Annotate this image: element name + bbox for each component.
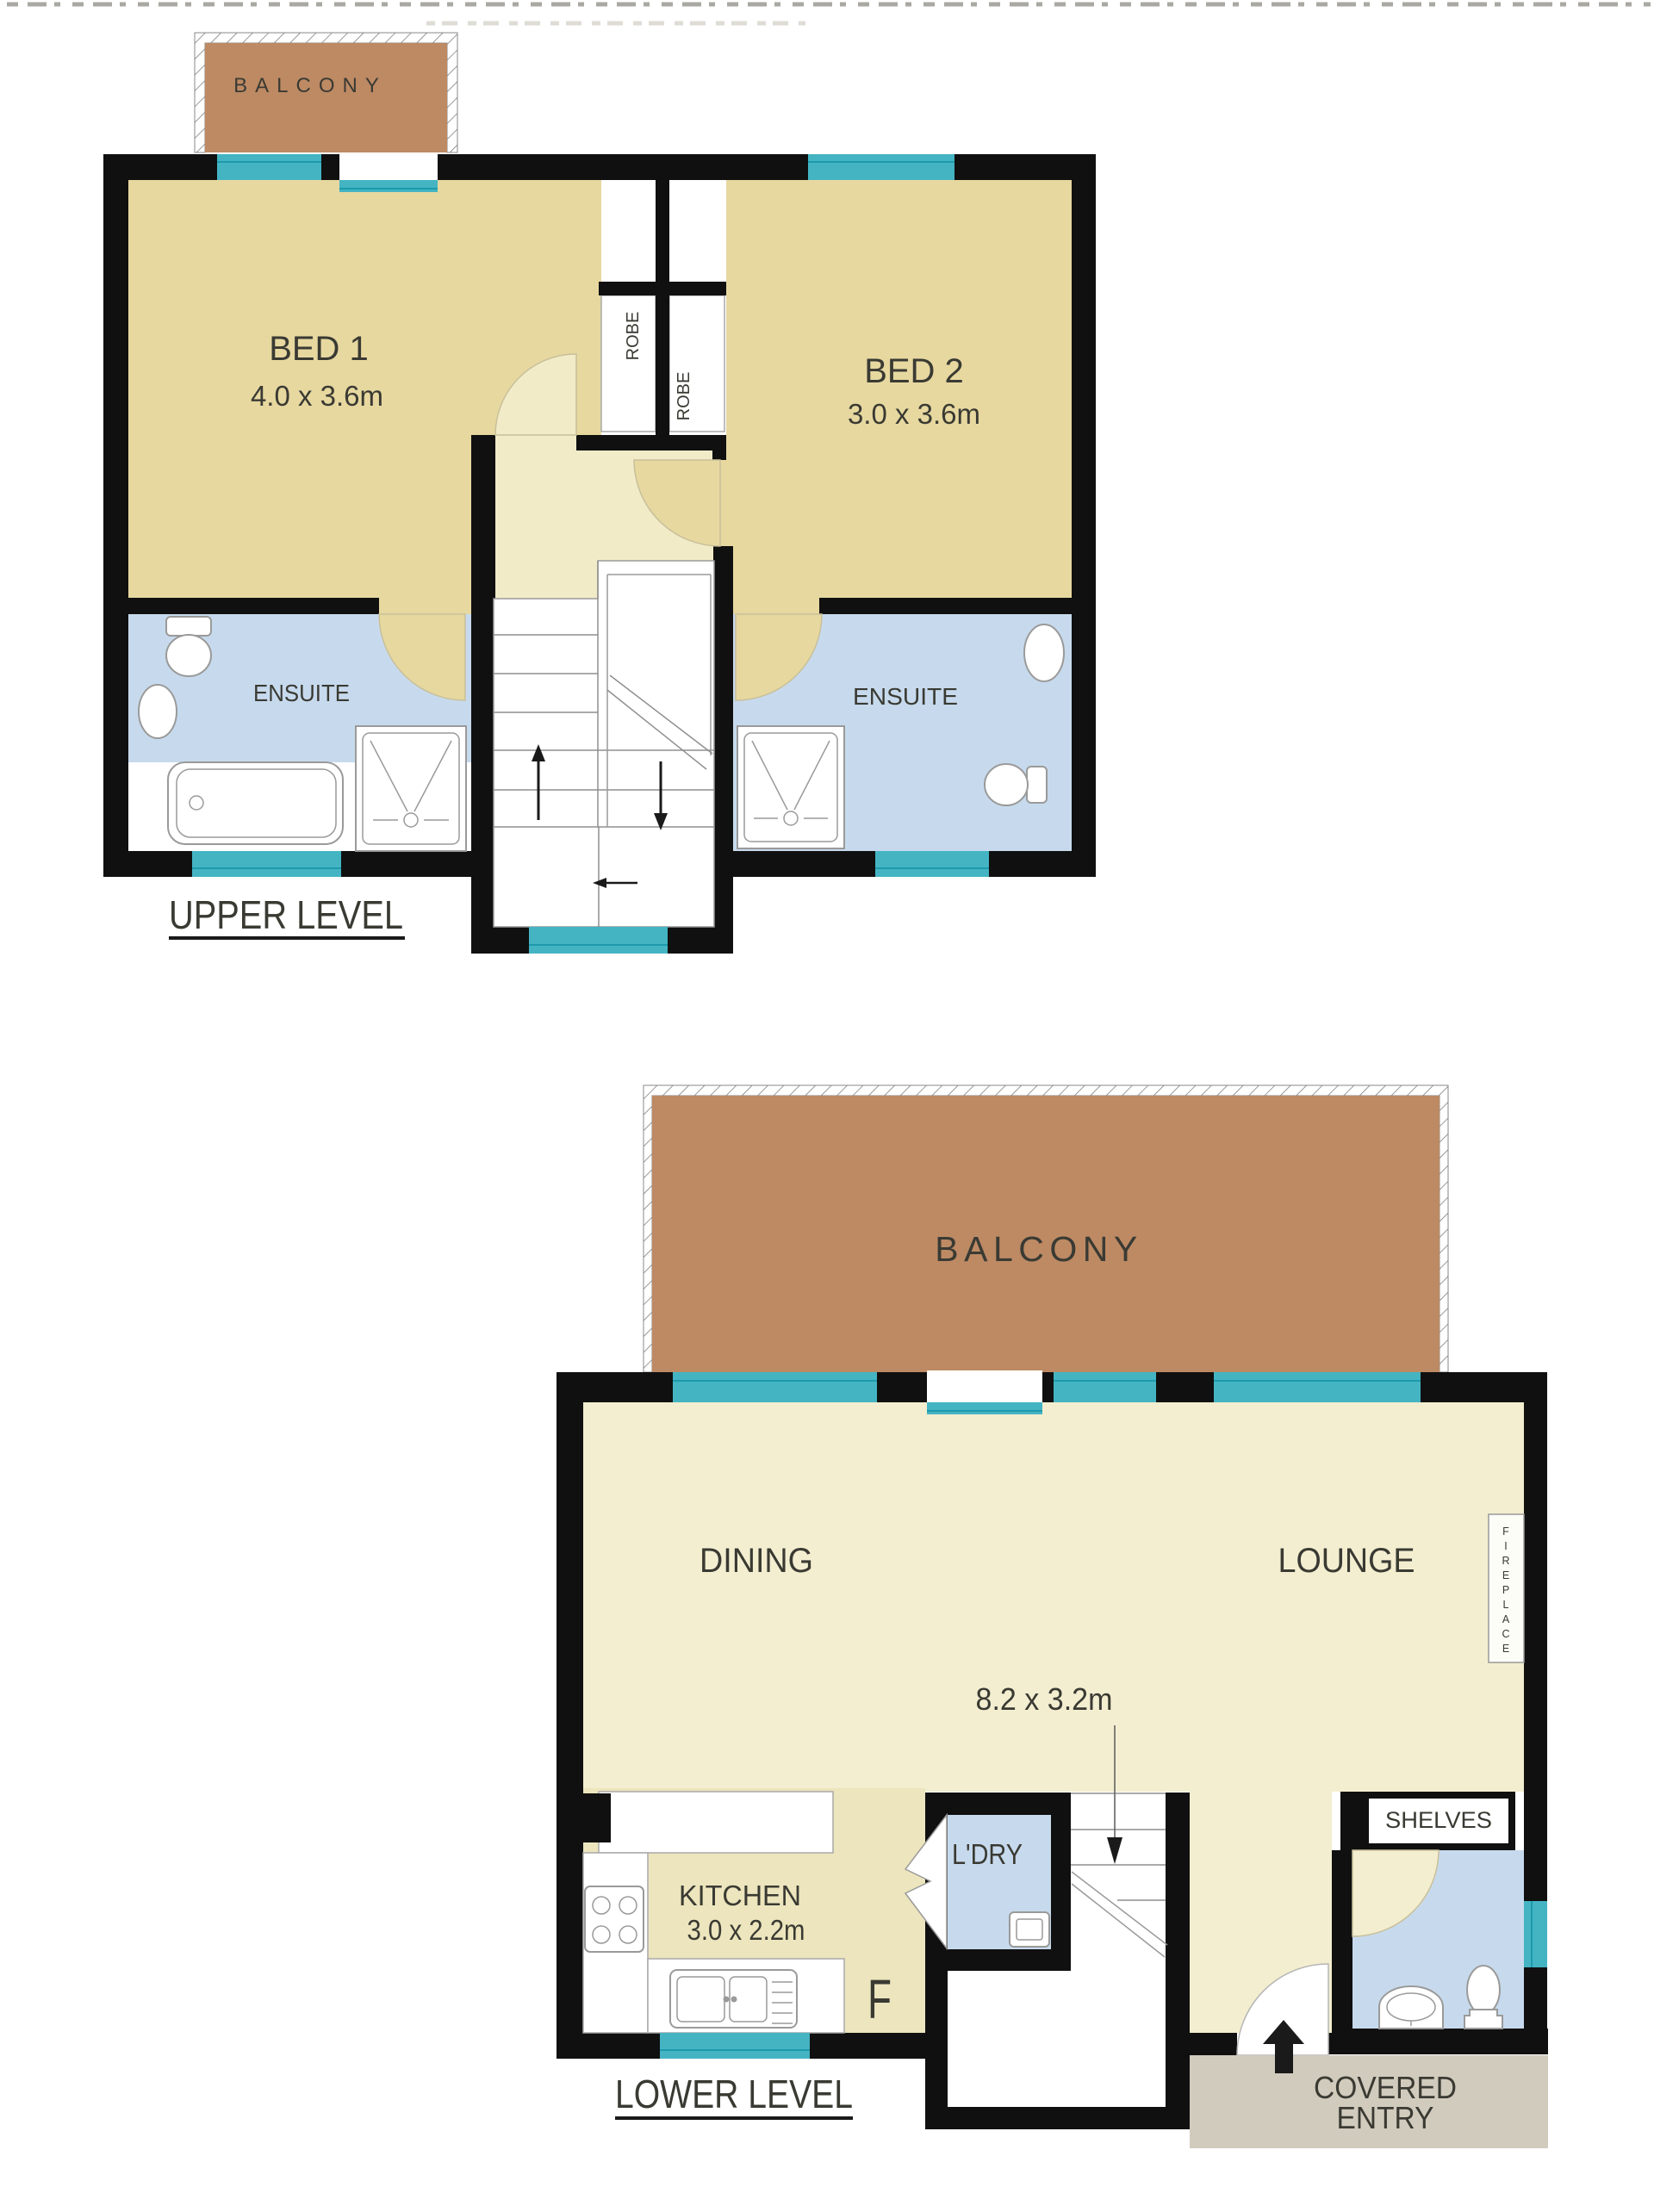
svg-text:DINING: DINING	[700, 1542, 813, 1580]
svg-text:UPPER LEVEL: UPPER LEVEL	[169, 892, 403, 937]
svg-text:ROBE: ROBE	[675, 372, 693, 421]
svg-text:P: P	[1502, 1584, 1509, 1596]
svg-text:4.0 x 3.6m: 4.0 x 3.6m	[251, 380, 383, 412]
svg-text:8.2 x 3.2m: 8.2 x 3.2m	[976, 1681, 1113, 1717]
svg-text:LOUNGE: LOUNGE	[1278, 1542, 1415, 1580]
svg-text:3.0 x 3.6m: 3.0 x 3.6m	[848, 398, 980, 430]
svg-text:ENSUITE: ENSUITE	[253, 680, 350, 706]
svg-text:R: R	[1502, 1555, 1509, 1567]
svg-text:BALCONY: BALCONY	[935, 1229, 1142, 1269]
svg-text:KITCHEN: KITCHEN	[679, 1880, 801, 1911]
svg-text:I: I	[1504, 1540, 1507, 1552]
svg-text:SHELVES: SHELVES	[1385, 1807, 1492, 1833]
svg-text:LOWER LEVEL: LOWER LEVEL	[615, 2072, 853, 2116]
svg-text:ROBE: ROBE	[624, 312, 643, 361]
svg-text:BED 1: BED 1	[269, 330, 369, 368]
svg-text:C: C	[1502, 1628, 1509, 1640]
svg-text:ENTRY: ENTRY	[1337, 2100, 1434, 2135]
svg-text:3.0 x 2.2m: 3.0 x 2.2m	[687, 1914, 805, 1946]
svg-text:L: L	[1503, 1599, 1509, 1611]
svg-text:ENSUITE: ENSUITE	[853, 683, 958, 710]
svg-text:E: E	[1502, 1569, 1509, 1581]
svg-text:E: E	[1502, 1643, 1509, 1655]
svg-text:BALCONY: BALCONY	[233, 74, 387, 97]
svg-text:F: F	[1502, 1525, 1509, 1538]
svg-text:BED 2: BED 2	[864, 352, 964, 390]
svg-text:L'DRY: L'DRY	[952, 1838, 1023, 1870]
svg-text:A: A	[1502, 1613, 1510, 1625]
svg-text:F: F	[867, 1968, 892, 2030]
